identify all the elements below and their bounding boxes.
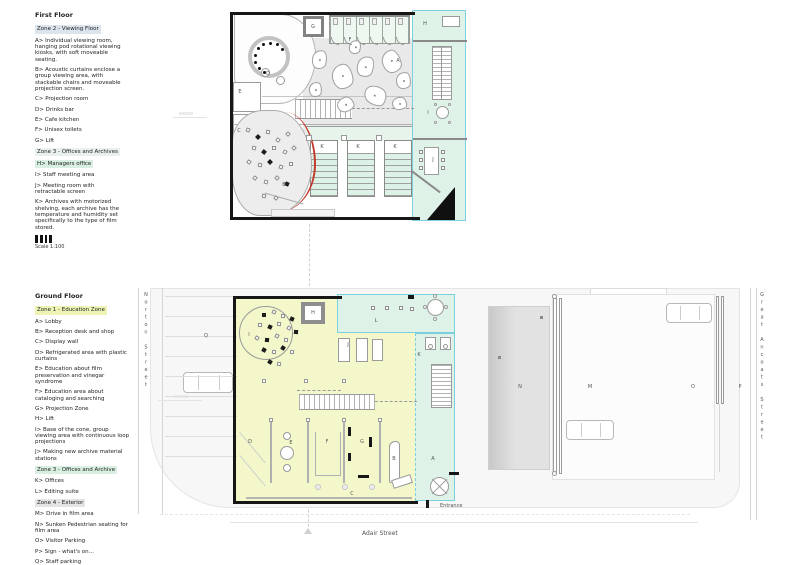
cone-seat [258,323,262,327]
office-fixture-circle [428,344,433,349]
gf-sign-line [719,404,720,472]
ff-wall-top [230,12,415,15]
ff-meeting-room-wall [413,138,467,140]
meeting-chair [419,150,423,154]
partition-cap [306,418,310,422]
section-line-lower [308,505,309,527]
gf-projector-1 [348,427,351,436]
ff-cafe-kitchen-room [233,82,261,112]
editing-chair [433,294,437,298]
legend-item: B> Reception desk and shop [35,329,131,335]
cone-seat [277,322,281,326]
pod-dot [399,103,401,105]
legend-item: I> Staff meeting area [35,172,125,178]
legend-item: C> Projection room [35,96,125,102]
gf-partition-3 [343,421,345,483]
gf-wall-stub-1 [449,472,459,475]
legend-item: J> Meeting room with retractable screen [35,183,125,196]
ff-stair-center-line [441,46,442,100]
column-marker [262,379,266,383]
stackable-chair [289,162,293,166]
section-line-upper [309,224,310,286]
legend-item: B> Acoustic curtains enclose a group vie… [35,67,125,92]
ground-floor-legend: Ground Floor Zone 1 - Education ZoneA> L… [35,293,131,565]
legend-item: Q> Staff parking [35,559,131,565]
bar-stool-dot [269,42,272,45]
chair-dot [434,121,437,124]
ff-exterior-step [271,209,335,217]
gf-partition-4 [379,421,381,483]
pod-dot [319,59,321,61]
car-visitor-parking [666,303,712,323]
parking-stall-line [165,416,237,417]
legend-item: N> Sunken Pedestrian seating for film ar… [35,522,131,535]
legend-item: D> Drinks bar [35,107,125,113]
editing-chair [444,305,448,309]
ff-office-wall [413,40,467,42]
parking-stall-line [165,296,237,297]
first-floor-title: First Floor [35,12,125,19]
ff-cafe-table-2 [276,76,285,85]
legend-item: E> Cafe kitchen [35,117,125,123]
seating-mark [540,316,543,319]
meeting-chair [419,166,423,170]
gf-wall-left [233,296,236,504]
legend-item: A> Lobby [35,319,131,325]
gf-lift [301,302,325,324]
gf-station-1 [338,338,350,362]
editing-chair [433,317,437,321]
bar-stool-dot [254,54,257,57]
gf-main-stair [299,394,375,410]
street-name-ancoats: Great Ancoats Street [759,292,765,442]
first-floor-legend: First Floor Zone 2 - Viewing FloorA> Ind… [35,12,125,251]
legend-item: L> Editing suite [35,489,131,495]
ff-level-marker-line [173,117,207,118]
legend-item: G> Projection Zone [35,406,131,412]
entrance-label: Entrance [440,503,462,509]
gf-floor-dot-2 [342,484,348,490]
gf-wall-stub-top [408,295,414,299]
ff-archive-room-2 [347,140,375,197]
stackable-chair [266,130,271,135]
legend-item: I> Base of the cone, group viewing area … [35,427,131,446]
cone-seat [277,362,282,367]
norton-street-line-1 [138,288,139,514]
first-floor-legend-rows: Zone 2 - Viewing FloorA> Individual view… [35,25,125,231]
ff-wall-left [230,12,233,220]
toilet-fixture [346,18,351,25]
legend-item: F> Unisex toilets [35,127,125,133]
pod-dot [390,60,392,62]
gf-wall-bottom [233,501,418,504]
ff-archive-corridor [306,126,412,140]
seating-mark [498,356,501,359]
ff-level-marker-text [179,112,193,115]
zone-heading: Zone 2 - Viewing Floor [35,25,125,33]
stackable-chair [258,163,263,168]
gf-station-3 [372,339,383,361]
gf-stair-dash-left [297,390,341,391]
gf-sunken-seating [488,306,550,470]
ff-stairwell [432,46,452,100]
archive-door [341,135,347,141]
adair-center-dashed [160,514,690,515]
ancoats-line-2 [756,288,757,520]
bar-stool-dot [258,67,261,70]
gf-screen-anchor-2 [552,471,557,476]
gf-education-table [315,432,341,476]
gf-projector-3 [369,437,372,447]
partition-cap [378,418,382,422]
toilet-fixture [359,18,364,25]
legend-item: O> Visitor Parking [35,538,131,544]
legend-item: K> Offices [35,478,131,484]
adair-curb [230,522,698,523]
gf-level-marker-line [158,400,202,401]
zone-heading: H> Managers office [35,160,125,168]
legend-item: J> Making new archive material stations [35,449,131,462]
ground-floor-title: Ground Floor [35,293,131,300]
legend-item: P> Sign - what's on... [35,549,131,555]
pod-dot [345,103,348,106]
zone-heading: Zone 4 - Exterior [35,499,131,507]
legend-item: F> Education area about cataloging and s… [35,389,131,402]
editing-seat [385,306,389,310]
ff-lift [303,16,324,37]
toilet-fixture [398,18,403,25]
meeting-chair [441,158,445,162]
street-name-norton: Norton Street [143,292,149,390]
bar-stool-dot [257,47,260,50]
cone-seat [284,338,288,342]
ff-managers-desk [442,16,460,27]
pod-dot [374,94,377,97]
gf-floor-dot-1 [315,484,321,490]
pod-dot [364,65,367,68]
section-marker [304,528,312,534]
partition-cap [269,418,273,422]
gf-projector-2 [348,453,351,461]
toilet-fixture [333,18,338,25]
gf-partition-1 [270,421,272,483]
pod-dot [354,46,356,48]
gf-sign-post-2 [721,296,724,404]
parking-stall-line [165,436,237,437]
viewing-pod [395,71,411,89]
legend-item: E> Education about film preservation and… [35,366,131,385]
parking-stall-line [165,376,237,377]
cone-seat [272,350,276,354]
gf-editing-table [427,299,444,316]
logo-mark [35,235,52,243]
chair-dot [448,121,451,124]
archive-door [376,135,382,141]
gf-display-wall-band [246,497,412,499]
ff-meeting-room-table [424,147,439,175]
gf-projector-4 [358,475,369,478]
gf-wall-top [233,296,342,299]
parking-stall-line [165,316,237,317]
legend-item: K> Archives with motorized shelving, eac… [35,199,125,231]
ground-floor-legend-rows: Zone 1 - Education ZoneA> LobbyB> Recept… [35,306,131,565]
legend-item: H> Lift [35,416,131,422]
gf-floor-dot-3 [369,484,375,490]
gf-stair-right [431,364,452,408]
parking-stall-line [165,396,237,397]
legend-item: D> Refrigerated area with plastic curtai… [35,350,131,363]
ff-archive-room-3 [384,140,412,197]
zone-heading: Zone 1 - Education Zone [35,306,131,314]
legend-item: G> Lift [35,138,125,144]
pod-dot [341,75,343,77]
cone-seat [294,330,298,334]
gf-partition-2 [307,421,309,483]
pod-dot [403,80,405,82]
gf-screen-anchor-1 [552,294,557,299]
zone-heading: Zone 3 - Offices and Archive [35,466,131,474]
cone-seat [262,313,266,317]
chair-dot [434,103,437,106]
meeting-chair [441,166,445,170]
pod-dot [315,89,317,91]
chair-dot [448,103,451,106]
office-fixture-circle [443,344,448,349]
gf-drive-in-screen-2 [559,298,562,474]
gf-station-2 [356,338,368,362]
cone-seat [290,350,295,355]
first-floor-scale-label: Scale 1:100 [35,245,125,251]
parking-stall-line [165,336,237,337]
partition-cap [342,418,346,422]
bar-stool-dot [254,61,257,64]
stackable-chair [262,194,267,199]
gf-film-reel-3 [283,464,291,472]
gf-film-reel-2 [280,446,294,460]
legend-item: C> Display wall [35,339,131,345]
ff-zone-boundary-dashed [412,24,413,218]
gf-lobby-column [415,333,455,501]
gf-drive-in-screen-1 [553,298,557,474]
parking-stall-line [165,356,237,357]
architectural-sheet: First Floor Zone 2 - Viewing FloorA> Ind… [0,0,800,565]
norton-street-line-2 [162,288,163,514]
editing-seat [399,306,403,310]
gf-film-reel-1 [283,432,291,440]
archive-door [306,135,312,141]
ancoats-line-1 [750,288,751,520]
car-drive-in [566,420,614,440]
ff-gallery-edge [262,96,412,97]
column-marker [304,379,308,383]
cone-seat [281,314,285,318]
column-marker [342,379,346,383]
ff-meeting-table-round [436,106,449,119]
legend-item: M> Drive in film area [35,511,131,517]
gf-sign-post-1 [716,296,719,404]
editing-chair [423,305,427,309]
zone-heading: Zone 3 - Offices and Archives [35,148,125,156]
toilet-fixture [372,18,377,25]
gf-stair-dash-right [375,401,417,402]
toilet-fixture [385,18,390,25]
meeting-chair [419,158,423,162]
street-name-adair: Adair Street [362,530,398,537]
parking-stall-line [165,456,237,457]
gf-wall-stub-2 [426,500,429,508]
editing-seat [371,306,375,310]
editing-seat [410,307,414,311]
ff-wall-bottom [230,217,420,220]
legend-item: A> Individual viewing room, hanging pod … [35,38,125,63]
cone-seat [265,338,269,342]
stackable-chair [272,146,276,150]
meeting-chair [441,150,445,154]
